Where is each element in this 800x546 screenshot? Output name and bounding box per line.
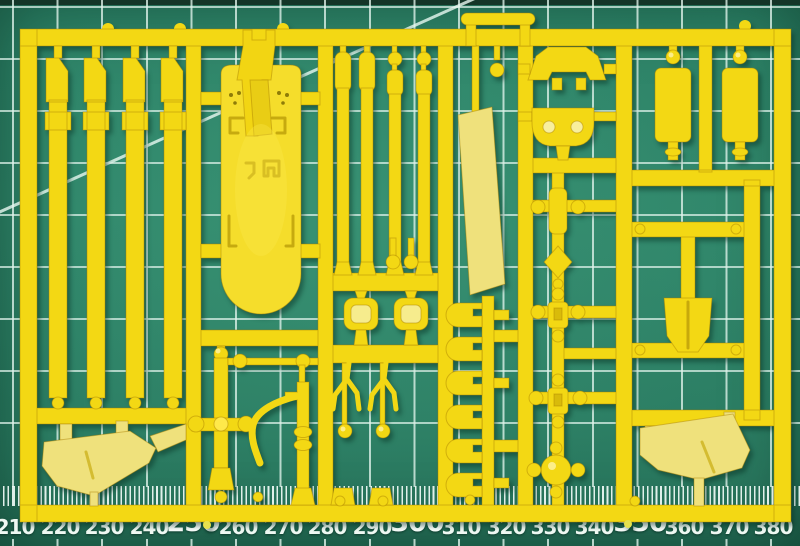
- bent-exhaust-pipe: [252, 396, 297, 463]
- eyelet-part: [394, 291, 428, 345]
- leaf-spring-strip: [83, 46, 109, 409]
- fender-panel-left: [42, 421, 186, 506]
- fender-panel-right: [640, 412, 750, 506]
- thin-strip-ball-top: [415, 46, 433, 275]
- leaf-spring-strip: [45, 46, 71, 409]
- leaf-spring-strip: [160, 46, 186, 409]
- photo-sprue-on-cutting-mat: 210 220 230 240 250 260 270 280 290 300 …: [0, 0, 800, 546]
- thin-strip: [334, 46, 352, 275]
- pipe-with-coupler-part: [285, 365, 315, 505]
- angled-flat-panel: [458, 107, 505, 295]
- thin-strip: [358, 46, 376, 275]
- box-tank-part: [722, 46, 758, 160]
- eyelet-part: [344, 291, 378, 345]
- leaf-spring-strip: [122, 46, 148, 409]
- plastic-sprue: [0, 0, 800, 546]
- box-tank-part: [655, 46, 691, 160]
